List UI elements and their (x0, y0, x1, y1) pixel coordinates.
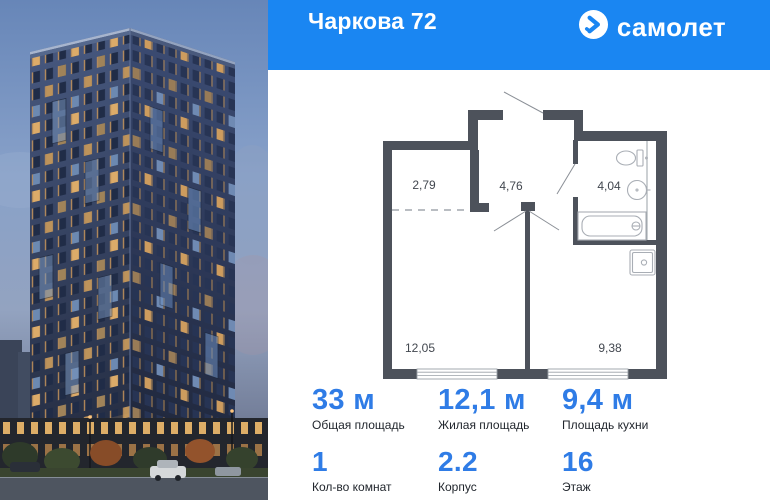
plan-walls (383, 110, 667, 379)
stat-kitchen-area-label: Площадь кухни (562, 418, 648, 432)
toilet-symbol (617, 150, 648, 166)
stat-floor-value: 16 (562, 449, 594, 475)
tower-left-face (30, 28, 130, 472)
stat-building-label: Корпус (438, 480, 478, 494)
stat-living-area: 12,1 м Жилая площадь (438, 387, 529, 432)
stat-rooms-value: 1 (312, 449, 392, 475)
project-title: Чаркова 72 (308, 8, 437, 35)
stat-total-area: 33 м Общая площадь (312, 387, 405, 432)
content-panel: 2,79 4,76 4,04 12,05 9,38 33 м Общая пло… (268, 70, 770, 500)
room-area-hall-closet: 2,79 (412, 178, 435, 192)
stat-kitchen-area: 9,4 м Площадь кухни (562, 387, 648, 432)
room-area-bathroom: 4,04 (597, 179, 620, 193)
distant-buildings (0, 340, 34, 427)
stat-total-area-value: 33 м (312, 387, 405, 413)
stat-floor: 16 Этаж (562, 449, 594, 494)
washing-machine-symbol (630, 250, 655, 275)
building-photo[interactable] (0, 0, 268, 500)
stat-rooms-label: Кол-во комнат (312, 480, 392, 494)
stat-living-area-value: 12,1 м (438, 387, 529, 413)
room-area-living-room: 12,05 (405, 341, 435, 355)
stat-living-area-label: Жилая площадь (438, 418, 529, 432)
floor-plan (268, 70, 770, 500)
stat-total-area-label: Общая площадь (312, 418, 405, 432)
stat-building-value: 2.2 (438, 449, 478, 475)
header: Чаркова 72 самолет (268, 0, 770, 70)
building-photo-art (0, 0, 268, 500)
street-scene (0, 409, 268, 500)
samolet-arrow-icon (578, 9, 609, 45)
stat-rooms: 1 Кол-во комнат (312, 449, 392, 494)
brand-logo[interactable]: самолет (578, 9, 726, 45)
fixtures (578, 150, 655, 275)
stat-kitchen-area-value: 9,4 м (562, 387, 648, 413)
room-area-hallway: 4,76 (499, 179, 522, 193)
bathtub-symbol (578, 212, 646, 240)
brand-name: самолет (617, 12, 726, 43)
stat-floor-label: Этаж (562, 480, 594, 494)
stat-building: 2.2 Корпус (438, 449, 478, 494)
room-area-kitchen: 9,38 (598, 341, 621, 355)
listing-card[interactable]: Чаркова 72 самолет (0, 0, 770, 500)
